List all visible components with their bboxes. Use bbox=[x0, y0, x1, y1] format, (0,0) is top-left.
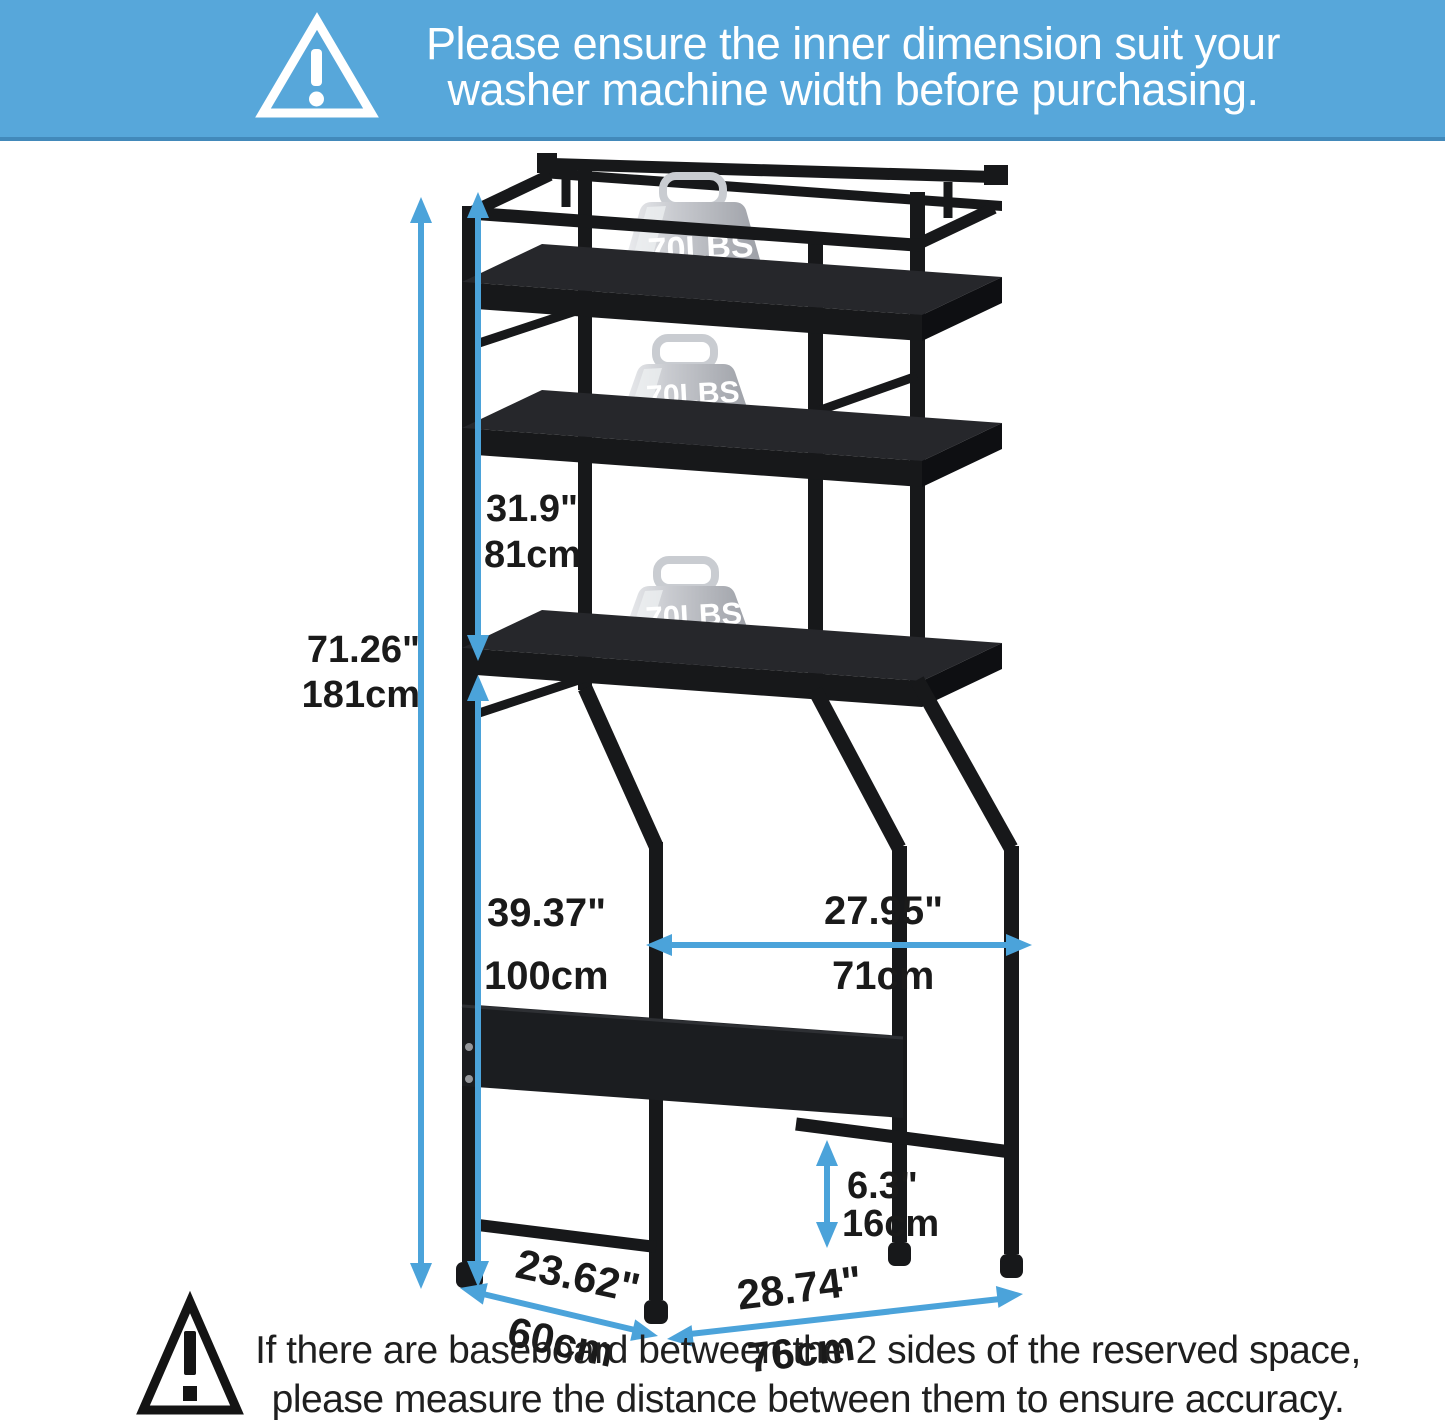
dimension-label-outer-width-in: 28.74" bbox=[734, 1257, 864, 1319]
dimension-label-shelf-section-cm: 81cm bbox=[484, 534, 581, 576]
dimension-total-height: 71.26" 181cm bbox=[302, 197, 432, 1289]
dimension-bottom-bar-height: 6.3" 16cm bbox=[816, 1140, 939, 1248]
screw-icon bbox=[465, 1043, 473, 1051]
dimension-label-bottom-bar-cm: 16cm bbox=[842, 1203, 939, 1245]
footer-line-1: If there are baseboard between the 2 sid… bbox=[255, 1329, 1361, 1372]
banner-bottom-edge bbox=[0, 137, 1445, 141]
dimension-label-clearance-cm: 100cm bbox=[484, 954, 609, 998]
rack-foot bbox=[888, 1242, 911, 1266]
diagram-canvas: Please ensure the inner dimension suit y… bbox=[0, 0, 1445, 1421]
dimension-label-inner-width-cm: 71cm bbox=[832, 954, 934, 998]
warning-triangle-icon bbox=[143, 1302, 237, 1410]
dimension-label-inner-width-in: 27.95" bbox=[824, 889, 943, 933]
rack-foot bbox=[644, 1300, 668, 1324]
dimension-label-clearance-in: 39.37" bbox=[487, 891, 606, 935]
rack-illustration: 70LBS 31.7KG 70LBS 31.7KG bbox=[456, 153, 1023, 1324]
dimension-label-total-height-cm: 181cm bbox=[302, 674, 420, 716]
dimension-label-depth-in: 23.62" bbox=[512, 1240, 644, 1312]
dimension-label-total-height-in: 71.26" bbox=[307, 629, 420, 671]
dimension-clearance-height: 39.37" 100cm bbox=[467, 675, 609, 1287]
dimension-label-shelf-section-in: 31.9" bbox=[486, 488, 578, 530]
dimension-inner-width: 27.95" 71cm bbox=[646, 889, 1032, 998]
dimension-label-bottom-bar-in: 6.3" bbox=[847, 1165, 918, 1207]
footer-note: If there are baseboard between the 2 sid… bbox=[143, 1302, 1361, 1421]
rack-foot bbox=[1000, 1254, 1023, 1278]
product-dimension-infographic: Please ensure the inner dimension suit y… bbox=[0, 0, 1445, 1421]
warning-banner: Please ensure the inner dimension suit y… bbox=[0, 0, 1445, 141]
footer-line-2: please measure the distance between them… bbox=[272, 1378, 1345, 1421]
weight-handle-icon bbox=[656, 338, 714, 366]
weight-handle-icon bbox=[657, 560, 715, 588]
banner-line-1: Please ensure the inner dimension suit y… bbox=[426, 18, 1281, 69]
screw-icon bbox=[465, 1075, 473, 1083]
banner-line-2: washer machine width before purchasing. bbox=[447, 64, 1259, 115]
